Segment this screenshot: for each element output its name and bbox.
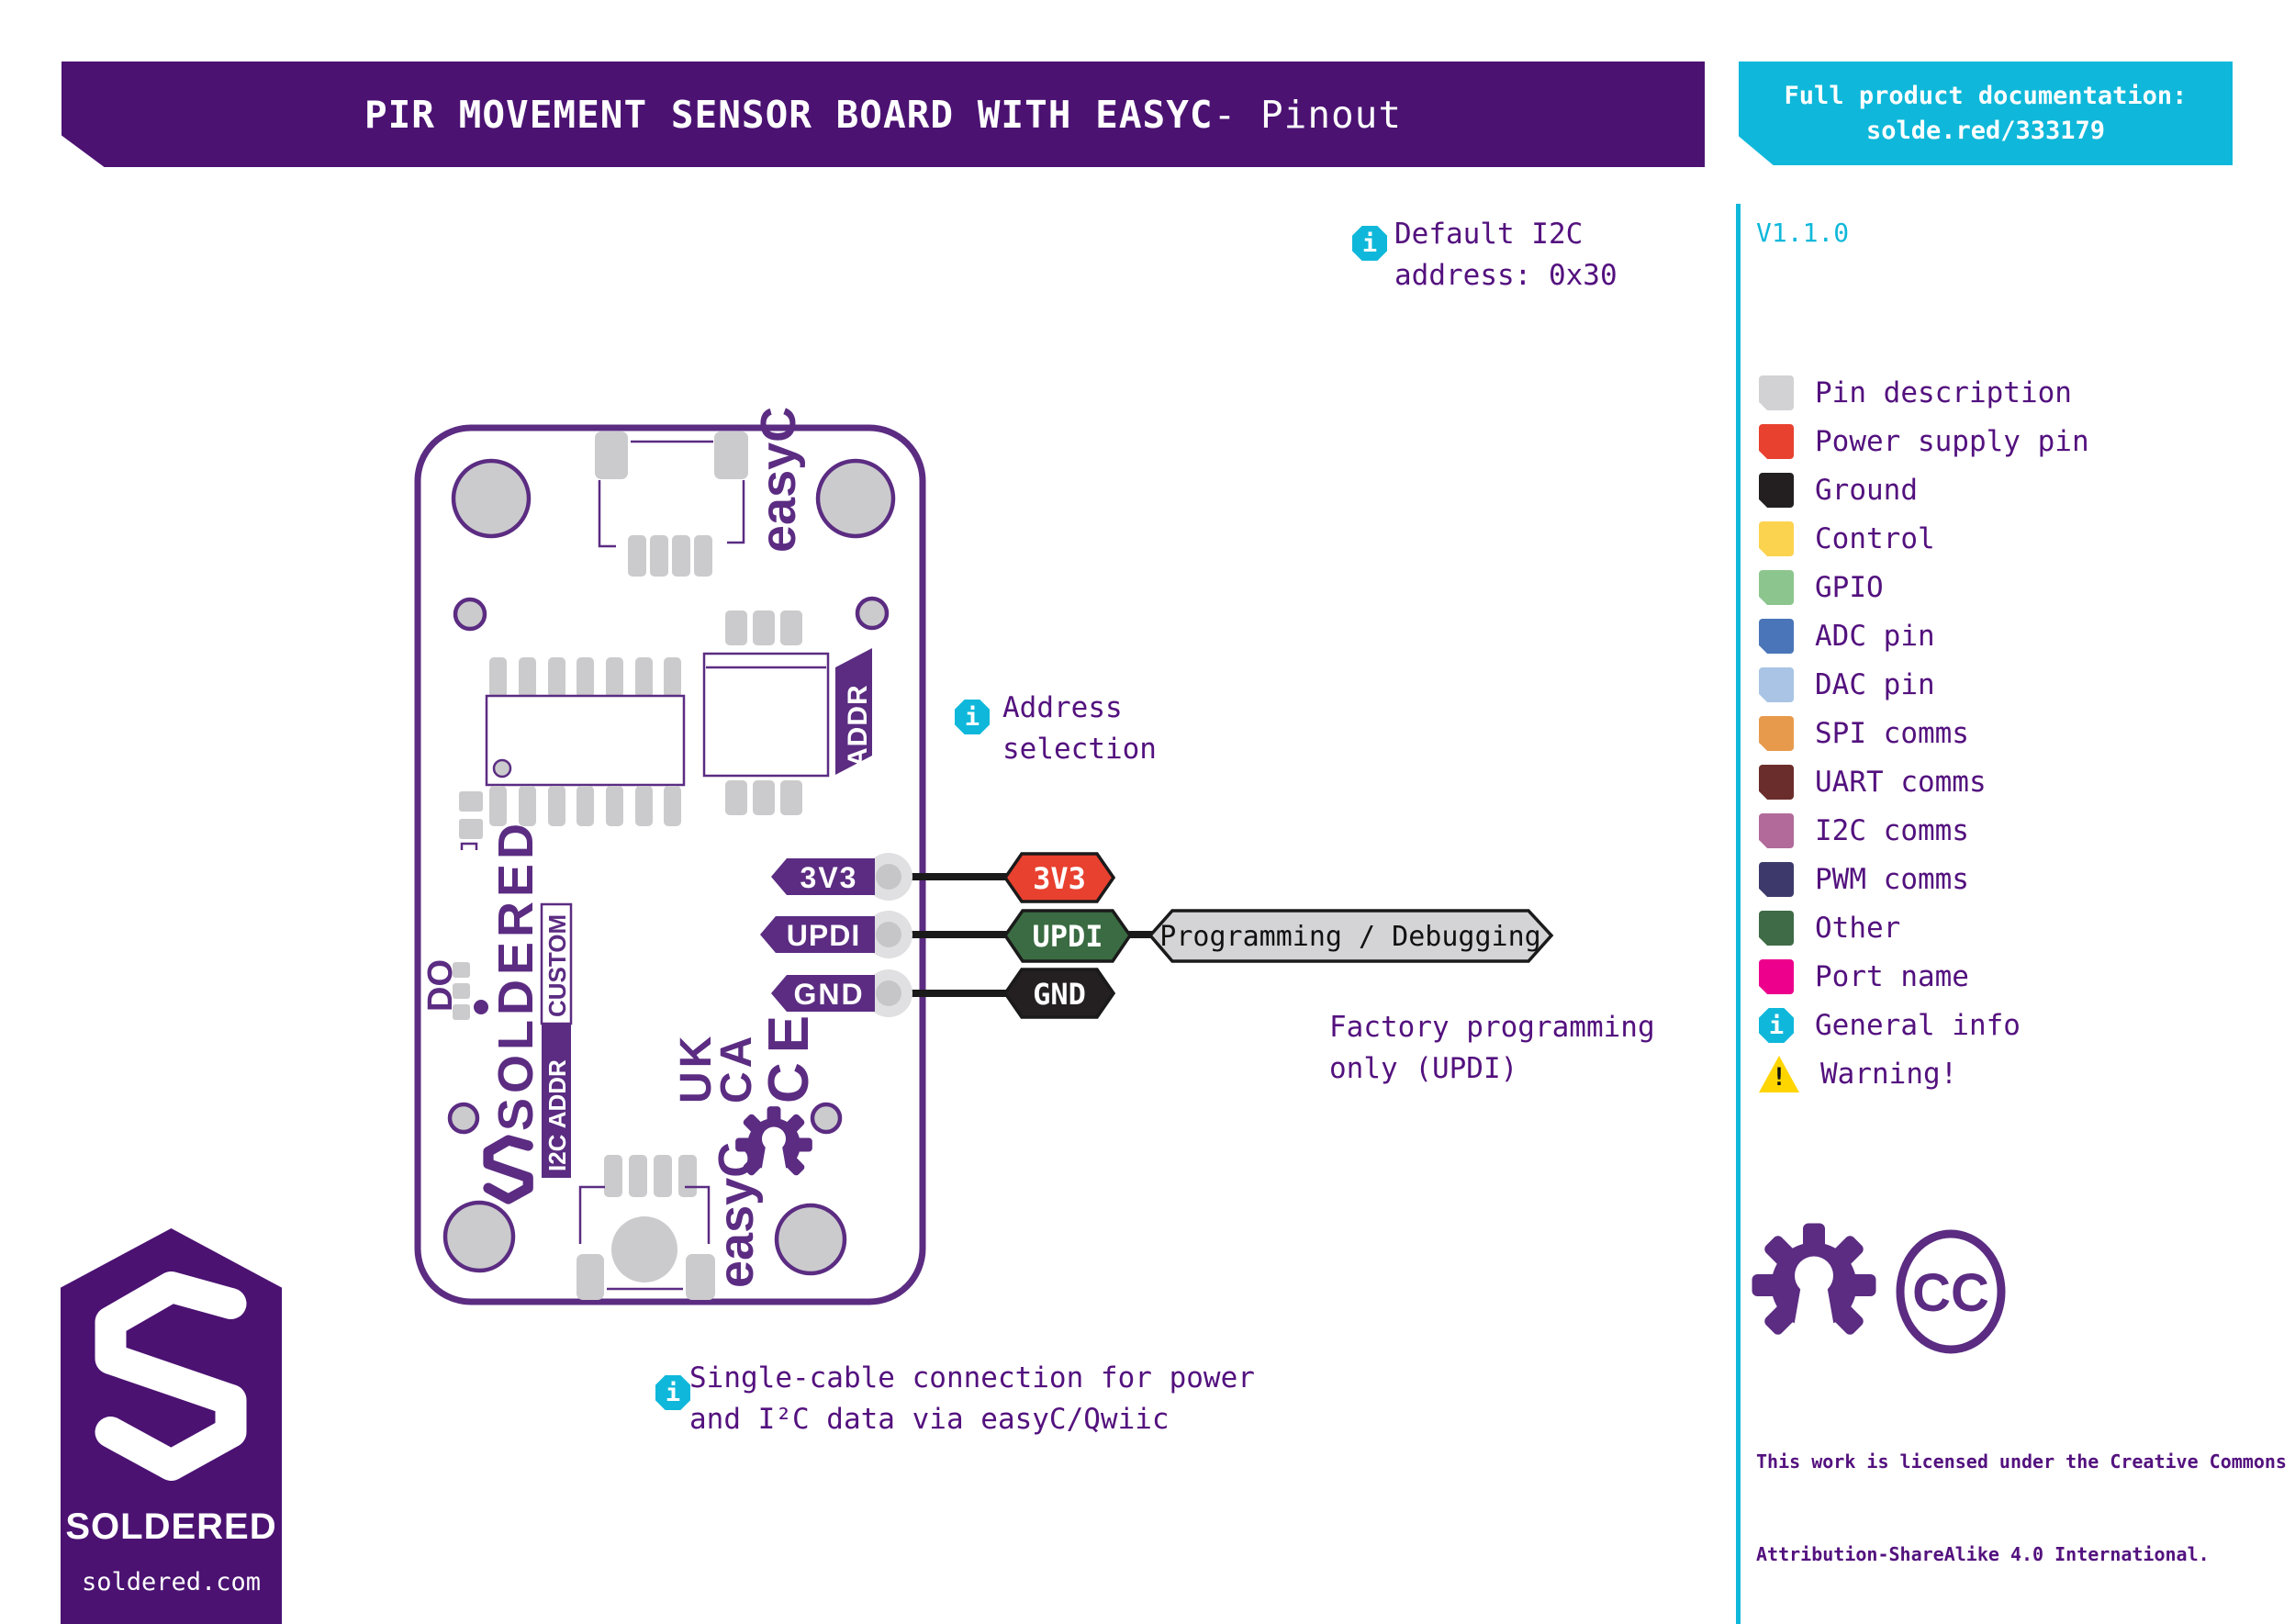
legend-item: Power supply pin [1759,424,2089,459]
legend-item-label: Power supply pin [1815,425,2089,458]
brand-site: soldered.com [61,1568,282,1596]
legend-item: iGeneral info [1759,1008,2089,1043]
legend-swatch [1759,716,1794,751]
doc-url: solde.red/333179 [1866,114,2105,149]
legend-item-label: General info [1815,1009,2021,1042]
legend-item: I2C comms [1759,813,2089,848]
license-text: This work is licensed under the Creative… [1756,1385,2287,1624]
legend-item: Pin description [1759,375,2089,410]
legend-item-label: GPIO [1815,571,1884,604]
legend-swatch [1759,667,1794,702]
svg-text:GND: GND [1033,977,1086,1012]
legend-item: !Warning! [1759,1057,2089,1092]
addr-flag: ADDR [835,648,873,775]
doc-line1: Full product documentation: [1785,79,2188,114]
legend-item-label: ADC pin [1815,620,1935,653]
legend-item-label: Pin description [1815,376,2072,409]
programming-debugging-tag: Programming / Debugging [1150,911,1551,961]
svg-text:GND: GND [793,978,864,1011]
svg-text:ADDR: ADDR [843,684,873,767]
legend-item: PWM comms [1759,862,2089,897]
version-label: V1.1.0 [1756,218,1849,248]
page-title-banner: PIR MOVEMENT SENSOR BOARD WITH EASYC - P… [62,62,1705,167]
legend-swatch [1759,375,1794,410]
cc-logo: CC [1900,1234,2001,1350]
legend-swatch [1759,911,1794,946]
pinout-page: easyC [0,0,2295,1624]
legend-item-label: SPI comms [1815,717,1969,750]
legend-item: DAC pin [1759,667,2089,702]
svg-text:CC: CC [1912,1263,1989,1323]
note-i2c-address: Default I2Caddress: 0x30 [1394,214,1618,297]
legend-item-label: Ground [1815,474,1918,507]
gear-icon-oshw [1752,1224,1876,1338]
legend-swatch [1759,862,1794,897]
legend-swatch [1759,473,1794,508]
legend-item: GPIO [1759,570,2089,605]
svg-text:CUSTOM: CUSTOM [543,914,571,1017]
legend-item: UART comms [1759,765,2089,800]
legend-swatch [1759,813,1794,848]
legend-item-label: Control [1815,522,1935,555]
legend-swatch [1759,765,1794,800]
page-subtitle: - Pinout [1214,93,1402,137]
pin-callout-3v3: 3V3 [1005,854,1114,902]
svg-text:UPDI: UPDI [787,919,860,952]
pin-callout-gnd: GND [1005,969,1114,1017]
legend-item: Port name [1759,959,2089,994]
info-icon: i [955,700,990,734]
svg-text:Programming / Debugging: Programming / Debugging [1159,921,1540,953]
easyc-label-bottom: easyC [709,1142,764,1288]
pin-row-updi: UPDI [760,911,912,958]
legend-item: Other [1759,911,2089,946]
svg-text:UPDI: UPDI [1032,919,1103,954]
documentation-box: Full product documentation: solde.red/33… [1739,62,2233,165]
info-icon: i [1352,226,1387,261]
ukca-mark: UK CA [672,1033,761,1103]
pin-row-gnd: GND [771,969,912,1017]
pin-row-3v3: 3V3 [771,853,912,901]
legend-swatch [1759,424,1794,459]
note-address-selection: Addressselection [1002,688,1157,770]
pin-callout-updi: UPDI [1005,911,1130,961]
brand-name: SOLDERED [61,1506,282,1548]
ce-mark: CE [757,1006,821,1103]
legend-item-label: PWM comms [1815,863,1969,896]
info-icon: i [1759,1008,1794,1043]
soldered-brand-block: SOLDERED soldered.com [61,1228,282,1624]
easyc-label-top: easyC [751,407,806,553]
page-title: PIR MOVEMENT SENSOR BOARD WITH EASYC [364,93,1214,137]
svg-text:3V3: 3V3 [800,861,858,894]
legend-swatch [1759,570,1794,605]
legend-item-label: I2C comms [1815,814,1969,847]
legend-item: SPI comms [1759,716,2089,751]
legend-item-label: Warning! [1820,1058,1957,1091]
legend-item: Control [1759,521,2089,556]
i2c-addr-custom-label: CUSTOM I2C ADDR [542,904,571,1178]
legend-swatch [1759,521,1794,556]
legend-item-label: UART comms [1815,766,1987,799]
soldered-s-logo [88,1267,253,1485]
legend-item: ADC pin [1759,619,2089,654]
sidebar-divider [1736,204,1741,1624]
legend-item-label: Other [1815,912,1900,945]
legend-item: Ground [1759,473,2089,508]
legend: Pin descriptionPower supply pinGroundCon… [1759,375,2089,1092]
soldered-silkscreen: SOLDERED [488,819,543,1131]
note-single-cable: Single-cable connection for powerand I²C… [689,1358,1255,1440]
warning-icon: ! [1759,1056,1799,1092]
legend-item-label: DAC pin [1815,668,1935,701]
svg-text:3V3: 3V3 [1033,861,1086,896]
legend-item-label: Port name [1815,960,1969,993]
info-icon: i [655,1375,690,1410]
legend-swatch [1759,619,1794,654]
note-factory-programming: Factory programmingonly (UPDI) [1329,1007,1655,1090]
legend-swatch [1759,959,1794,994]
svg-text:CA: CA [712,1033,761,1103]
svg-text:I2C ADDR: I2C ADDR [543,1059,571,1171]
